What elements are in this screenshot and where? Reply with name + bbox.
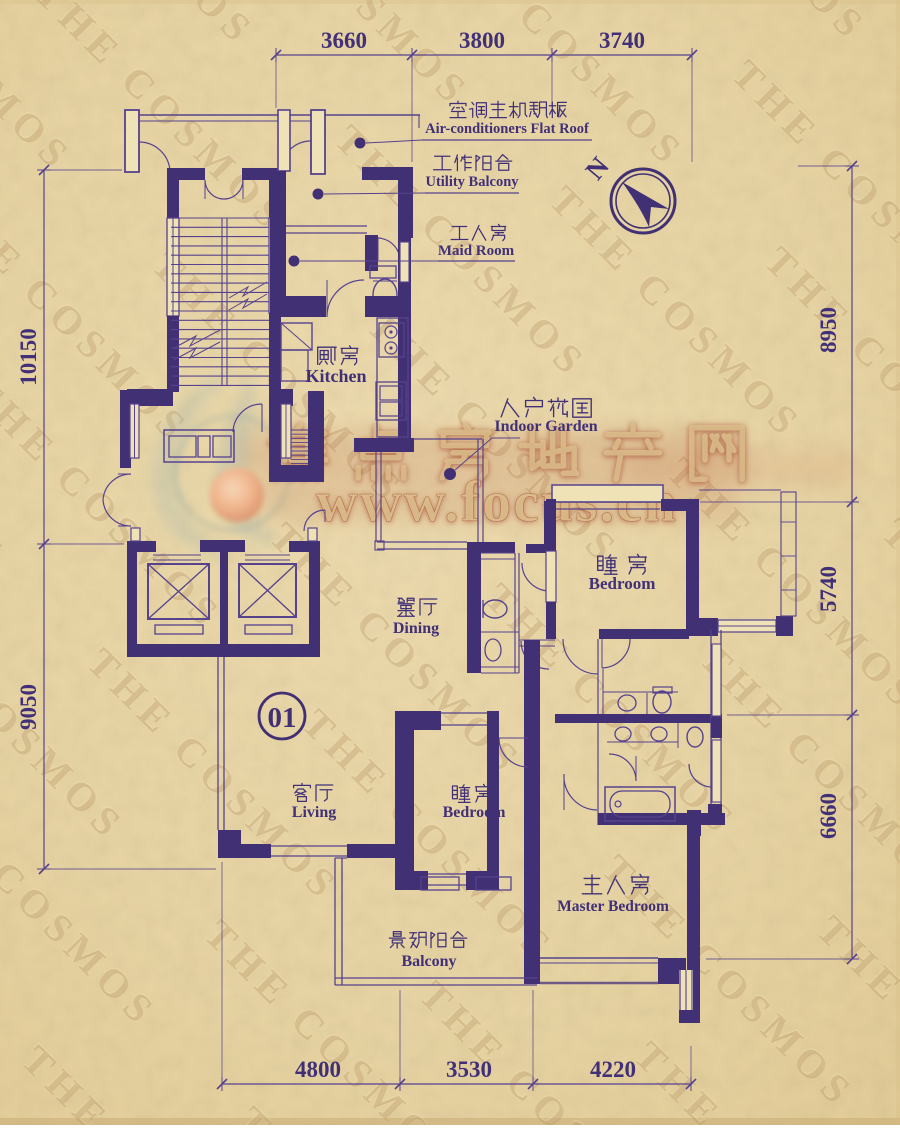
svg-text:3740: 3740 — [599, 28, 645, 53]
svg-text:Bedroom: Bedroom — [589, 574, 656, 593]
svg-text:6660: 6660 — [816, 793, 841, 839]
svg-text:Master Bedroom: Master Bedroom — [557, 898, 669, 915]
svg-text:Kitchen: Kitchen — [306, 366, 367, 386]
svg-text:8950: 8950 — [816, 307, 841, 353]
svg-text:01: 01 — [268, 702, 297, 734]
svg-text:3660: 3660 — [321, 28, 367, 53]
svg-text:Bedroom: Bedroom — [443, 804, 506, 821]
svg-text:9050: 9050 — [16, 684, 41, 730]
svg-text:Balcony: Balcony — [401, 953, 456, 970]
svg-text:Indoor Garden: Indoor Garden — [494, 418, 597, 435]
svg-text:Dining: Dining — [393, 620, 439, 637]
svg-text:10150: 10150 — [16, 328, 41, 386]
svg-text:3800: 3800 — [459, 28, 505, 53]
svg-text:4800: 4800 — [295, 1057, 341, 1082]
svg-text:3530: 3530 — [446, 1057, 492, 1082]
svg-text:Air-conditioners Flat Roof: Air-conditioners Flat Roof — [425, 121, 589, 137]
svg-text:5740: 5740 — [816, 566, 841, 612]
svg-text:Utility Balcony: Utility Balcony — [425, 174, 519, 190]
svg-text:4220: 4220 — [590, 1057, 636, 1082]
svg-text:Maid Room: Maid Room — [438, 243, 515, 259]
svg-text:Living: Living — [292, 804, 336, 821]
